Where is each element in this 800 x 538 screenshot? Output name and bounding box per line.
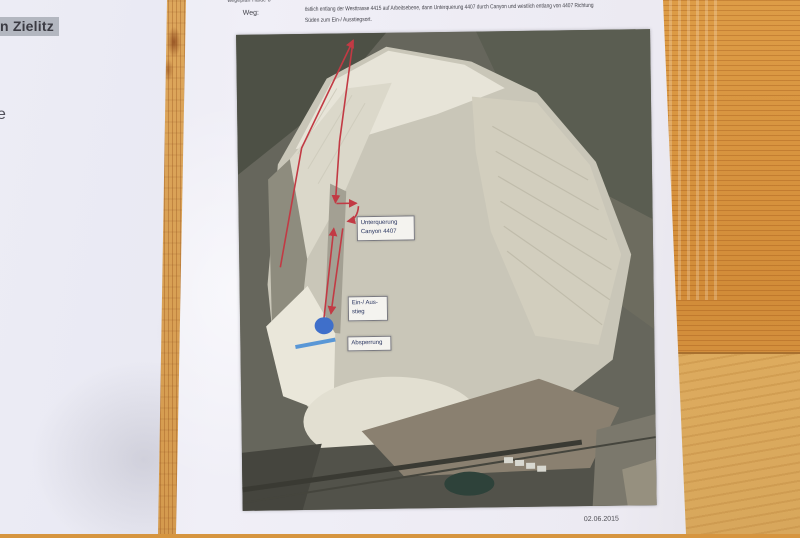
highlighted-text: n Zielitz <box>0 17 59 36</box>
entry-exit-label-line2: stieg <box>352 308 384 318</box>
aerial-photo-graphic <box>236 29 657 511</box>
document-date: 02.06.2015 <box>584 516 619 523</box>
underpass-label-line2: Canyon 4407 <box>361 228 411 238</box>
cutoff-caption-line: wegeplan Halde 8 <box>228 0 271 4</box>
underpass-label: Unterquerung Canyon 4407 <box>357 215 415 240</box>
route-description-line2: Süden zum Ein-/ Ausstiegsort. <box>305 17 372 24</box>
entry-exit-label: Ein-/ Aus- stieg <box>348 296 388 321</box>
barrier-label: Absperrung <box>347 336 391 352</box>
aerial-photo: Unterquerung Canyon 4407 Ein-/ Aus- stie… <box>236 29 657 511</box>
edge-text-fragment: e <box>0 106 6 124</box>
route-label: Weg: <box>243 10 259 17</box>
route-description-line1: östlich entlang der Westtrasse 4415 auf … <box>305 3 594 13</box>
entry-exit-label-line1: Ein-/ Aus- <box>352 299 384 309</box>
